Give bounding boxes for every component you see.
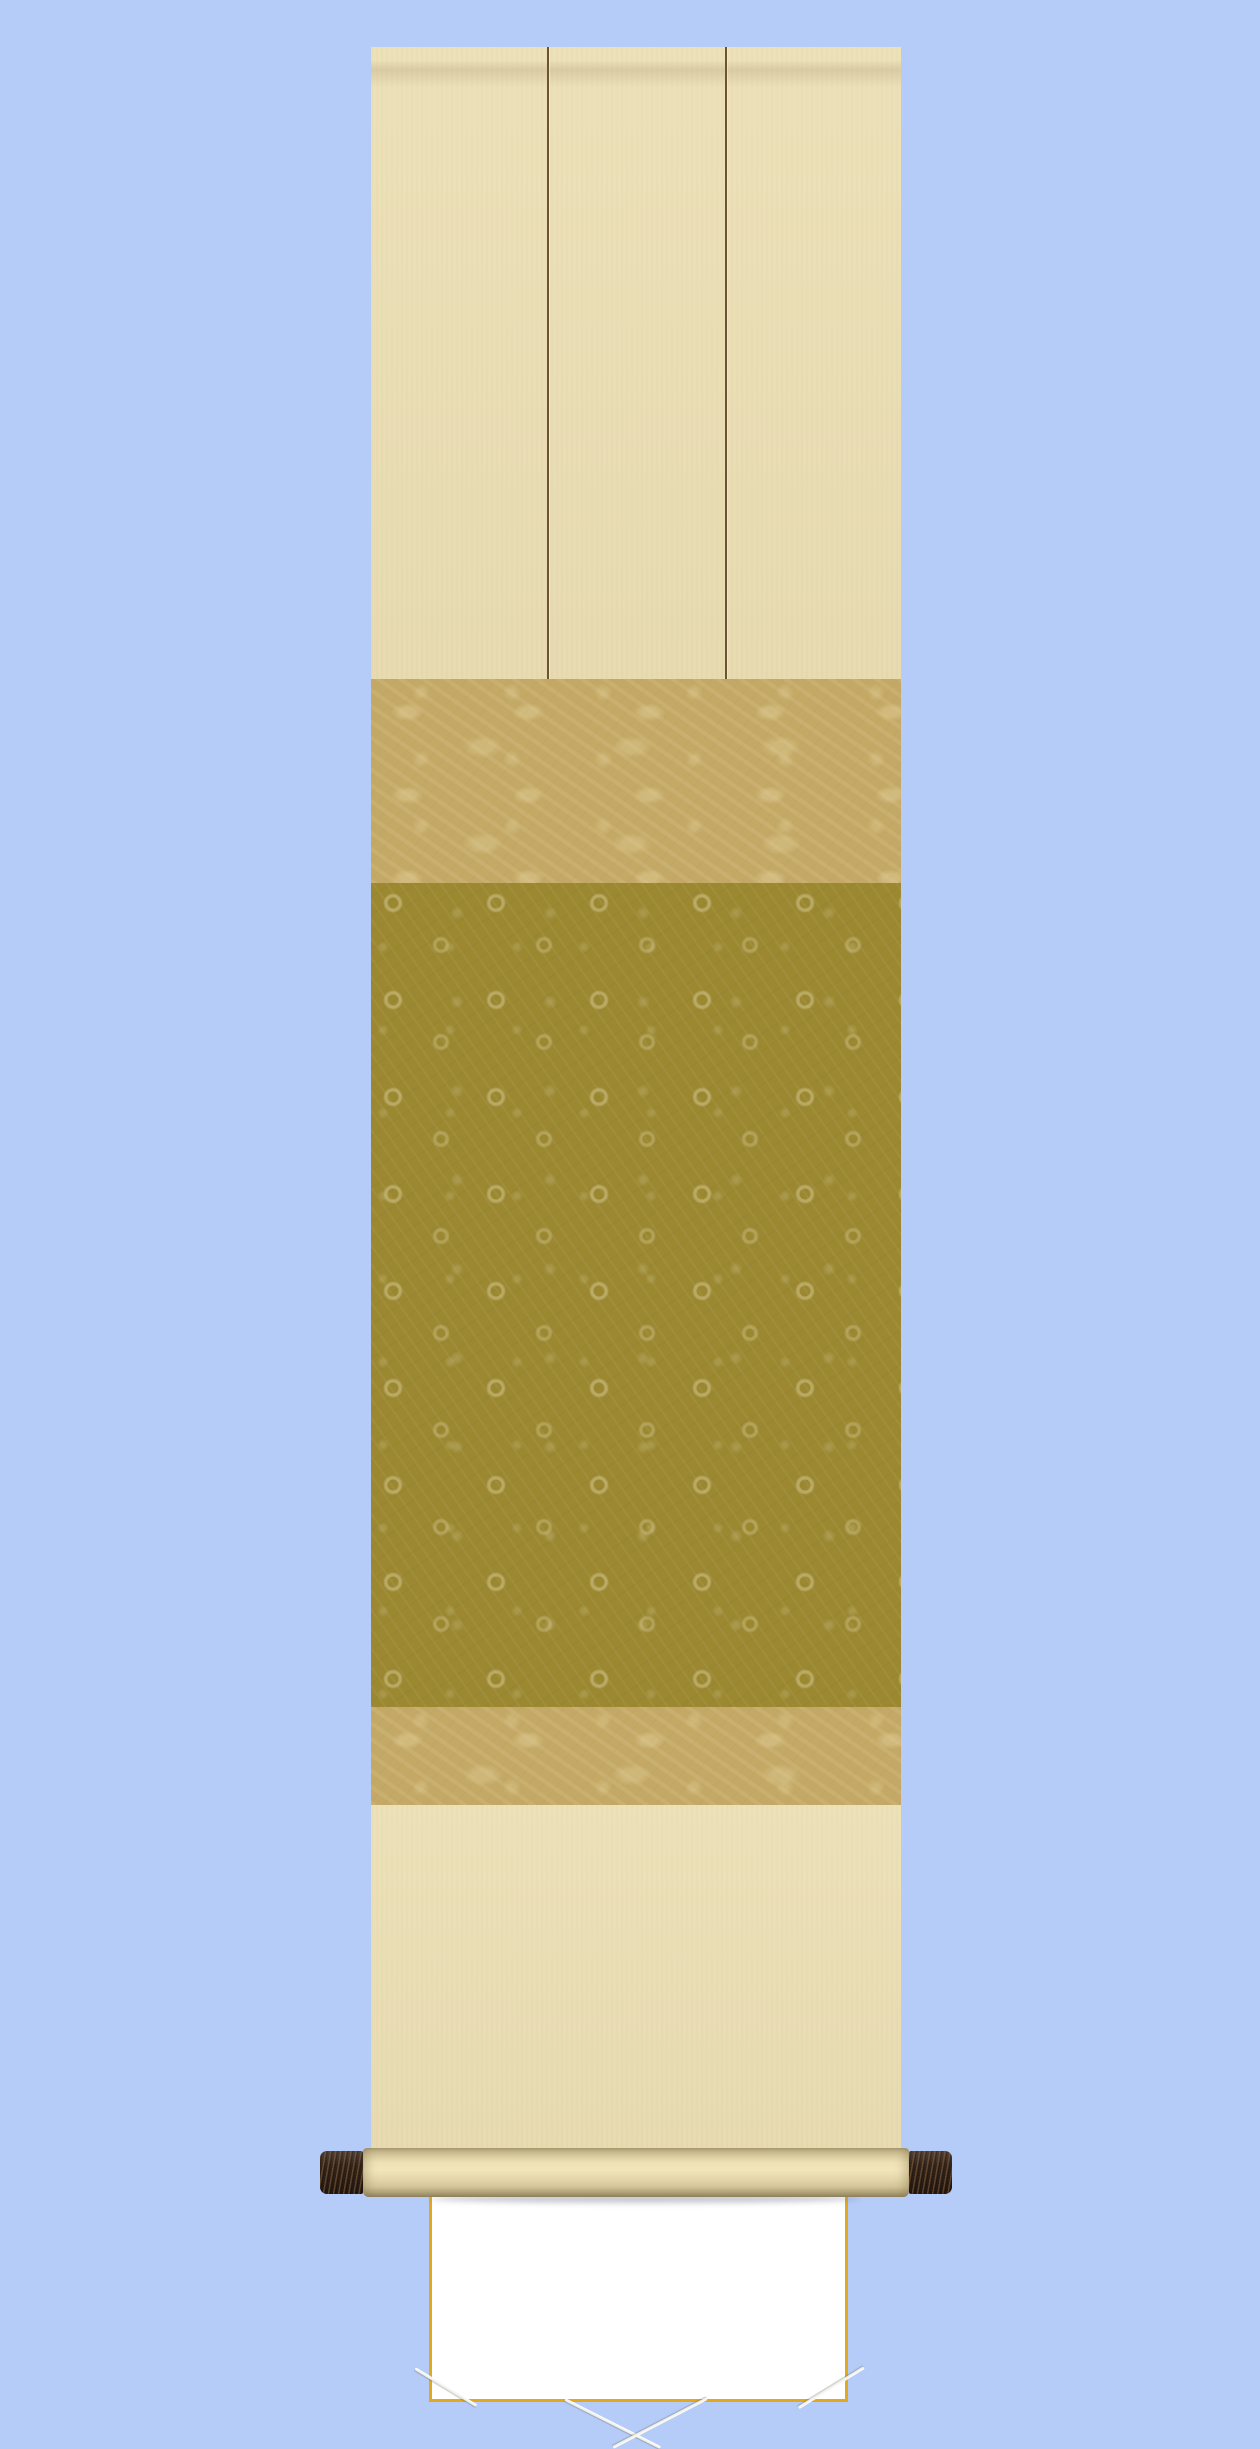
roller-knob-left [320, 2151, 363, 2194]
top-rod-shadow [371, 60, 901, 88]
futai-divider-line-right [725, 47, 727, 679]
mounting-cord-cross-left [564, 2398, 661, 2449]
upper-accent-band [371, 679, 901, 883]
top-mounting-panel [371, 47, 901, 679]
futai-divider-line-left [547, 47, 549, 679]
roller-bar [363, 2148, 909, 2197]
bottom-mounting-panel [371, 1805, 901, 2150]
lower-accent-band [371, 1707, 901, 1805]
inner-mount-panel [371, 883, 901, 1707]
hanging-scroll-body [371, 47, 901, 2150]
background [0, 0, 1260, 2240]
mounting-cord-cross-right [612, 2397, 707, 2449]
roller-knob-right [909, 2151, 952, 2194]
